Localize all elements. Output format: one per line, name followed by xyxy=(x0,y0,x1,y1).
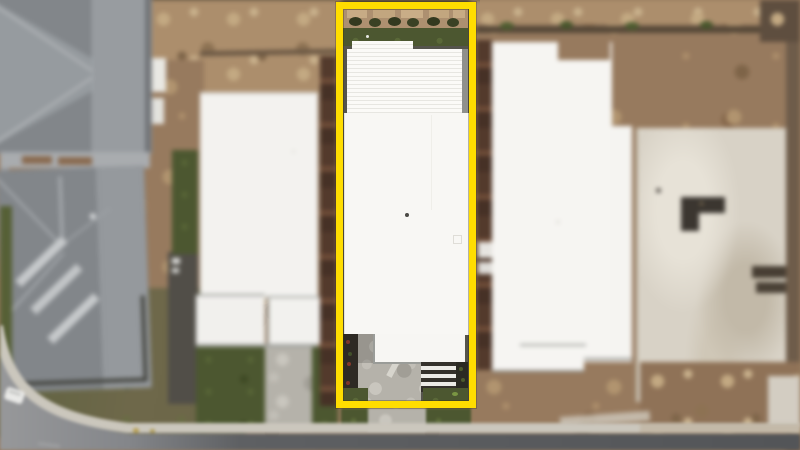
highlighted-lot xyxy=(0,0,800,450)
aerial-photo xyxy=(0,0,800,450)
lot-boundary-highlight xyxy=(336,2,476,408)
